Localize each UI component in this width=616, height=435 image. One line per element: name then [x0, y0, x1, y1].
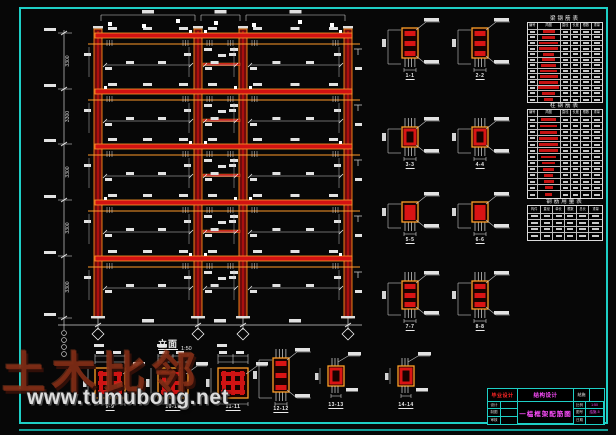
table-cell — [528, 148, 538, 153]
rebar-shape-cell — [538, 136, 561, 141]
table-cell — [561, 154, 571, 159]
table-column-header: 简图 — [538, 23, 561, 29]
table-cell — [528, 63, 538, 68]
table-cell — [581, 154, 591, 159]
table-column-header: 简图 — [538, 110, 561, 116]
title-block-category: 结施 — [574, 389, 590, 401]
table-cell — [561, 136, 571, 141]
table-cell — [592, 161, 602, 166]
table-cell — [589, 233, 602, 240]
rebar-shape-cell — [538, 148, 561, 153]
title-block-grid: 设计 一榀框架配筋图 比例 1:50 制图 图号 结施-5 审核 日期 — [488, 402, 604, 424]
table-cell — [528, 74, 538, 79]
table-cell — [581, 167, 591, 172]
table-cell — [528, 46, 538, 51]
table-cell — [528, 161, 538, 166]
table-cell — [581, 117, 591, 122]
table-cell — [528, 136, 538, 141]
tb-label-scale: 比例 — [574, 402, 586, 409]
section-label: 14-14 — [398, 402, 413, 409]
table-cell — [571, 130, 581, 135]
tb-value-number: 结施-5 — [586, 409, 604, 416]
table-cell — [565, 220, 577, 226]
table-cell — [589, 220, 602, 226]
table-cell — [581, 142, 591, 147]
table-cell — [581, 148, 591, 153]
rebar-shape-cell — [538, 185, 561, 190]
table-cell — [561, 130, 571, 135]
table-column-header: 直径 — [541, 206, 553, 213]
table-cell — [592, 167, 602, 172]
storey-height-dim: 3300 — [65, 55, 71, 66]
table-cell — [528, 35, 538, 40]
table-cell — [571, 86, 581, 91]
table-cell — [528, 91, 538, 96]
table-cell — [528, 167, 538, 172]
rebar-shape-cell — [538, 154, 561, 159]
table-cell — [561, 167, 571, 172]
rebar-shape-cell — [538, 74, 561, 79]
storey-height-dim: 3300 — [65, 222, 71, 233]
tb-label-design: 设计 — [488, 402, 501, 409]
table-cell — [581, 58, 591, 63]
section-label: 2-2 — [476, 73, 485, 80]
table-cell — [581, 69, 591, 74]
table-cell — [561, 173, 571, 178]
rebar-shape-cell — [538, 52, 561, 57]
table-cell — [571, 185, 581, 190]
table-cell — [577, 233, 590, 240]
table-title: 钢筋用量表 — [527, 197, 603, 204]
storey-height-dim: 3300 — [65, 281, 71, 292]
title-block-drawing-name: 一榀框架配筋图 — [518, 402, 574, 424]
table-column-header: 根数 — [581, 110, 591, 116]
rebar-shape-cell — [538, 86, 561, 91]
table-cell — [528, 41, 538, 46]
table-cell — [577, 220, 590, 226]
rebar-shape-cell — [538, 41, 561, 46]
table-cell — [528, 80, 538, 85]
table-cell — [561, 123, 571, 128]
table-column-header: 构件 — [528, 206, 541, 213]
table-cell — [571, 148, 581, 153]
table-cell — [561, 161, 571, 166]
table-cell — [571, 154, 581, 159]
table-cell — [571, 58, 581, 63]
table-cell — [571, 167, 581, 172]
rebar-shape-cell — [538, 167, 561, 172]
table-cell — [561, 41, 571, 46]
table-cell — [528, 130, 538, 135]
rebar-shape-cell — [538, 123, 561, 128]
table-cell — [581, 173, 591, 178]
table-cell — [528, 233, 541, 240]
rebar-shape-cell — [538, 179, 561, 184]
table-cell — [571, 63, 581, 68]
table-cell — [571, 35, 581, 40]
table-cell — [528, 220, 541, 226]
table-cell — [592, 41, 602, 46]
table-cell — [528, 58, 538, 63]
table-column-header: 总长 — [577, 206, 590, 213]
table-cell — [561, 117, 571, 122]
table-cell — [561, 185, 571, 190]
table-cell — [592, 142, 602, 147]
table-cell — [581, 41, 591, 46]
table-cell — [581, 179, 591, 184]
table-cell — [528, 123, 538, 128]
table-cell — [553, 227, 565, 233]
table-cell — [592, 58, 602, 63]
table-cell — [561, 52, 571, 57]
table-column-header: 编号 — [528, 110, 538, 116]
table-cell — [561, 74, 571, 79]
table-cell — [592, 154, 602, 159]
section-label: 7-7 — [406, 324, 415, 331]
rebar-schedule-table: 柱钢筋表编号简图直径长度根数重量 — [527, 101, 603, 199]
table-cell — [561, 30, 571, 35]
table-cell — [581, 130, 591, 135]
table-cell — [561, 148, 571, 153]
table-cell — [577, 214, 590, 220]
table-cell — [592, 130, 602, 135]
table-cell — [571, 123, 581, 128]
table-cell — [528, 86, 538, 91]
rebar-shape-cell — [538, 58, 561, 63]
tb-blank — [501, 402, 518, 409]
rebar-shape-cell — [538, 117, 561, 122]
table-column-header: 重量 — [592, 23, 602, 29]
rebar-shape-cell — [538, 35, 561, 40]
table-cell — [528, 142, 538, 147]
table-column-header: 重量 — [589, 206, 602, 213]
table-column-header: 长度 — [571, 23, 581, 29]
rebar-shape-cell — [538, 142, 561, 147]
table-cell — [565, 233, 577, 240]
tb-value-scale: 1:50 — [586, 402, 604, 409]
table-cell — [581, 91, 591, 96]
table-cell — [561, 86, 571, 91]
tb-blank — [501, 417, 518, 424]
table-cell — [561, 91, 571, 96]
section-label: 4-4 — [476, 162, 485, 169]
table-cell — [581, 185, 591, 190]
rebar-shape-cell — [538, 161, 561, 166]
table-cell — [528, 30, 538, 35]
table-cell — [571, 52, 581, 57]
rebar-shape-cell — [538, 80, 561, 85]
table-cell — [541, 214, 553, 220]
table-cell — [561, 46, 571, 51]
table-cell — [565, 214, 577, 220]
table-cell — [571, 69, 581, 74]
table-cell — [528, 179, 538, 184]
table-column-header: 重量 — [592, 110, 602, 116]
title-block-empty-cell — [590, 389, 604, 401]
table-column-header: 根数 — [581, 23, 591, 29]
table-cell — [571, 179, 581, 184]
section-label: 1-1 — [406, 73, 415, 80]
table-cell — [565, 227, 577, 233]
table-cell — [541, 233, 553, 240]
rebar-shape-cell — [538, 173, 561, 178]
section-label: 3-3 — [406, 162, 415, 169]
table-title: 柱钢筋表 — [527, 101, 603, 108]
table-cell — [592, 46, 602, 51]
section-label: 8-8 — [476, 324, 485, 331]
table-cell — [592, 52, 602, 57]
table-cell — [528, 117, 538, 122]
table-column-header: 编号 — [528, 23, 538, 29]
table-cell — [571, 80, 581, 85]
table-cell — [581, 30, 591, 35]
table-column-header: 根数 — [565, 206, 577, 213]
table-cell — [561, 80, 571, 85]
table-cell — [592, 69, 602, 74]
table-cell — [592, 173, 602, 178]
table-cell — [581, 74, 591, 79]
table-cell — [581, 86, 591, 91]
table-cell — [561, 63, 571, 68]
table-cell — [592, 86, 602, 91]
tb-label-date: 日期 — [574, 417, 586, 424]
table-cell — [561, 35, 571, 40]
rebar-schedule-table: 钢筋用量表构件直径单长根数总长重量 — [527, 197, 603, 241]
title-block-top-row: 毕业设计 结构设计 结施 — [488, 389, 604, 402]
table-cell — [592, 185, 602, 190]
table-cell — [571, 161, 581, 166]
table-cell — [581, 52, 591, 57]
table-cell — [528, 227, 541, 233]
table-cell — [592, 74, 602, 79]
rebar-shape-cell — [538, 63, 561, 68]
table-cell — [553, 233, 565, 240]
storey-height-dim: 3300 — [65, 111, 71, 122]
table-cell — [592, 148, 602, 153]
tb-label-draw: 制图 — [488, 409, 501, 416]
tb-blank — [501, 409, 518, 416]
tb-value-date — [586, 417, 604, 424]
table-cell — [592, 179, 602, 184]
table-cell — [553, 214, 565, 220]
watermark-url: www.tumubong.net — [27, 386, 229, 410]
rebar-shape-cell — [538, 130, 561, 135]
title-block: 毕业设计 结构设计 结施 设计 一榀框架配筋图 比例 1:50 制图 图号 结施… — [487, 388, 605, 425]
tb-label-number: 图号 — [574, 409, 586, 416]
table-cell — [592, 30, 602, 35]
table-cell — [589, 227, 602, 233]
table-cell — [528, 214, 541, 220]
table-cell — [571, 142, 581, 147]
table-cell — [553, 220, 565, 226]
table-cell — [592, 123, 602, 128]
table-cell — [528, 185, 538, 190]
table-cell — [571, 136, 581, 141]
rebar-shape-cell — [538, 30, 561, 35]
table-cell — [581, 161, 591, 166]
table-column-header: 直径 — [561, 23, 571, 29]
table-cell — [571, 117, 581, 122]
rebar-schedule-table: 梁钢筋表编号简图直径长度根数重量 — [527, 14, 603, 103]
table-cell — [577, 227, 590, 233]
table-cell — [581, 80, 591, 85]
table-cell — [581, 123, 591, 128]
table-column-header: 直径 — [561, 110, 571, 116]
table-cell — [528, 69, 538, 74]
table-cell — [592, 35, 602, 40]
table-cell — [571, 30, 581, 35]
table-cell — [581, 35, 591, 40]
table-column-header: 单长 — [553, 206, 565, 213]
table-cell — [592, 63, 602, 68]
table-cell — [571, 91, 581, 96]
title-block-unit: 毕业设计 — [488, 389, 518, 401]
table-cell — [528, 52, 538, 57]
section-label: 6-6 — [476, 237, 485, 244]
section-label: 12-12 — [273, 406, 288, 413]
table-title: 梁钢筋表 — [527, 14, 603, 21]
table-cell — [571, 46, 581, 51]
table-cell — [571, 173, 581, 178]
table-cell — [592, 136, 602, 141]
table-cell — [581, 46, 591, 51]
table-cell — [592, 80, 602, 85]
table-cell — [528, 154, 538, 159]
table-cell — [571, 74, 581, 79]
table-cell — [581, 136, 591, 141]
table-cell — [592, 117, 602, 122]
tb-label-check: 审核 — [488, 417, 501, 424]
table-cell — [528, 173, 538, 178]
section-label: 5-5 — [406, 237, 415, 244]
table-cell — [541, 227, 553, 233]
storey-height-dim: 3300 — [65, 166, 71, 177]
table-cell — [561, 142, 571, 147]
table-cell — [589, 214, 602, 220]
table-column-header: 长度 — [571, 110, 581, 116]
rebar-shape-cell — [538, 69, 561, 74]
table-cell — [561, 69, 571, 74]
table-row — [528, 233, 602, 240]
table-cell — [571, 41, 581, 46]
section-label: 13-13 — [328, 402, 343, 409]
title-block-project: 结构设计 — [518, 389, 574, 401]
table-cell — [541, 220, 553, 226]
table-cell — [561, 179, 571, 184]
rebar-shape-cell — [538, 46, 561, 51]
table-cell — [581, 63, 591, 68]
rebar-shape-cell — [538, 91, 561, 96]
cad-drawing-sheet: 33003300330033003300 立面1:50 土木比邻 www.tum… — [0, 0, 616, 435]
table-cell — [561, 58, 571, 63]
table-cell — [592, 91, 602, 96]
